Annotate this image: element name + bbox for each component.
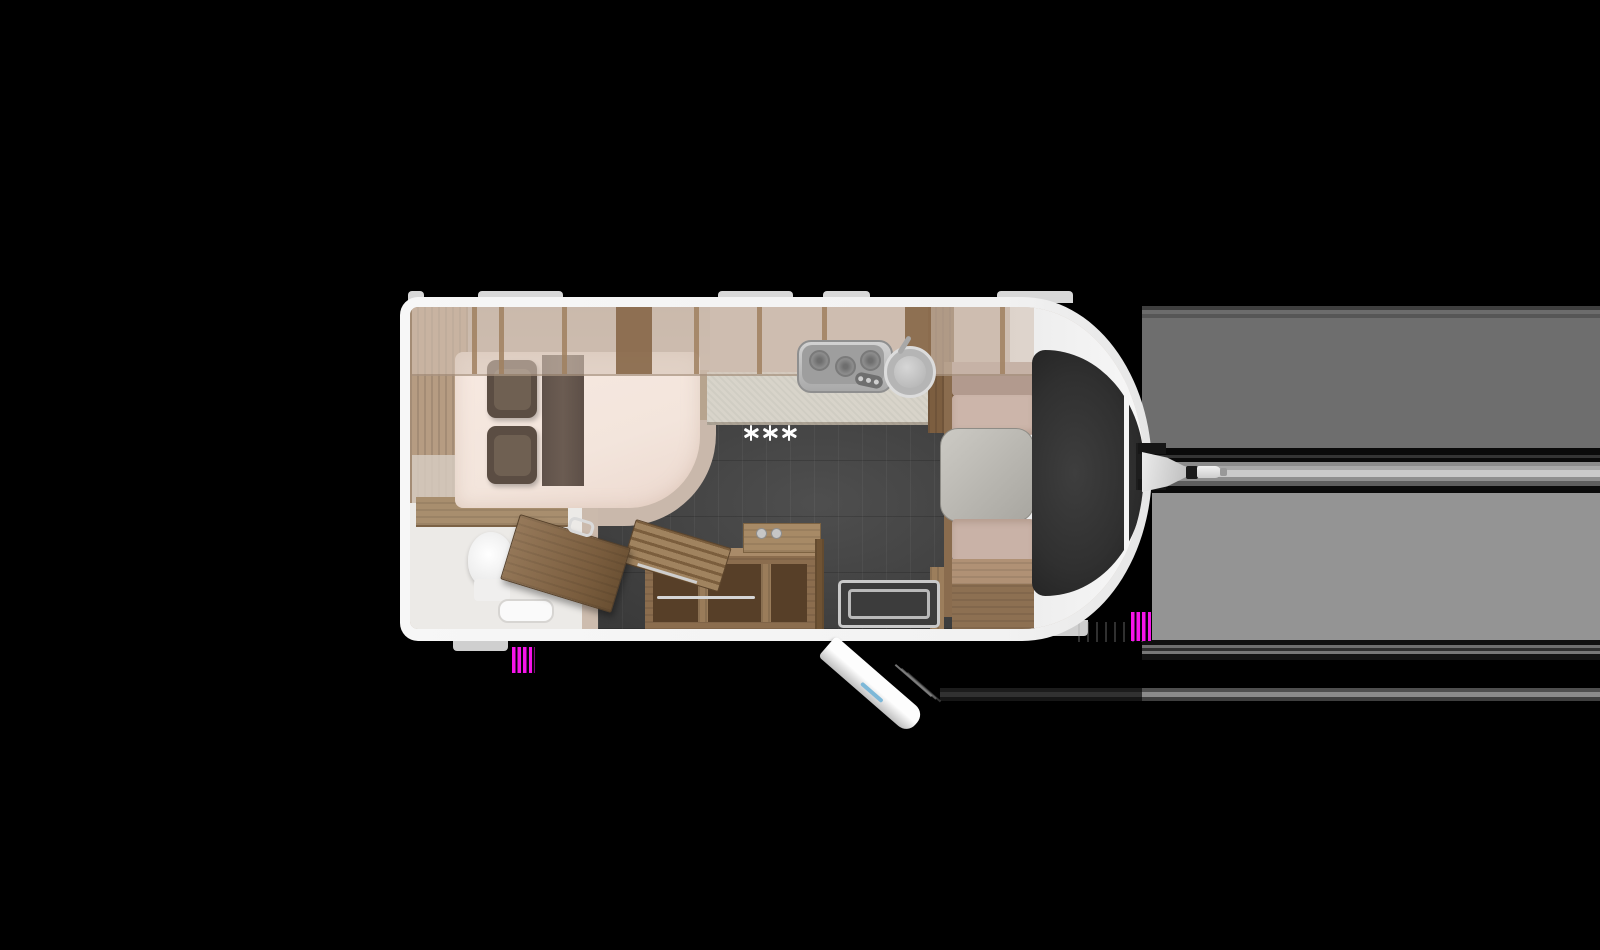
locker-divider: [472, 307, 477, 374]
flame-star-icon: [761, 424, 779, 442]
dinette-bench-front-top: [952, 559, 1034, 585]
hob-flame-marks-icon: [742, 424, 800, 444]
dinette-table: [940, 428, 1034, 522]
window-mullion: [1124, 362, 1129, 584]
locker-divider: [499, 307, 504, 374]
knob: [866, 377, 872, 383]
artifact-band: [1152, 493, 1600, 640]
kitchen-sink: [884, 346, 936, 398]
hob-burner: [809, 350, 830, 371]
knob: [873, 379, 879, 385]
dinette-bench-front-cushion: [952, 519, 1034, 561]
cabinet-worktop: [743, 523, 821, 553]
door-accent-stripe: [860, 682, 884, 703]
artifact-band: [1142, 318, 1600, 448]
pillow-cushion: [494, 435, 531, 476]
flame-star-icon: [742, 424, 760, 442]
container-cylinder: [756, 528, 767, 539]
washbasin: [498, 599, 554, 623]
pillow: [487, 426, 537, 484]
artifact-band: [1142, 654, 1600, 660]
locker-divider: [562, 307, 567, 374]
locker-wood-block: [616, 307, 652, 374]
toilet-base: [474, 579, 510, 601]
glitch-magenta-jockey: [512, 647, 535, 673]
locker-divider: [694, 307, 699, 374]
hob-burner: [835, 356, 856, 377]
locker-divider: [757, 307, 762, 374]
hitch-handle: [1197, 466, 1221, 478]
door-step-line: [907, 672, 942, 702]
artifact-band: [1142, 697, 1600, 701]
hob-burner: [860, 350, 881, 371]
overhead-lockers: [412, 307, 1034, 376]
cabinet-chrome-rail: [657, 596, 755, 599]
gas-hob: [797, 340, 893, 393]
artifact-stripe-faint: [940, 697, 1152, 701]
cabinet-divider: [761, 564, 771, 622]
hitch-tip: [1220, 468, 1227, 476]
cabinet-partition: [815, 539, 824, 629]
entry-step-frame: [838, 580, 940, 628]
container-cylinder: [771, 528, 782, 539]
caravan-interior: [410, 307, 1144, 629]
artifact-band: [1142, 486, 1600, 493]
flame-star-icon: [780, 424, 798, 442]
knob: [858, 376, 864, 382]
dinette-bench-front-base: [952, 584, 1034, 629]
sink-bowl: [894, 356, 926, 388]
artifact-band: [1142, 448, 1600, 455]
entry-step-inner: [848, 589, 930, 619]
locker-divider: [1000, 307, 1005, 374]
glitch-magenta-rear: [1131, 612, 1151, 641]
entry-door-open: [818, 636, 925, 734]
canvas: ***: [0, 0, 1600, 950]
